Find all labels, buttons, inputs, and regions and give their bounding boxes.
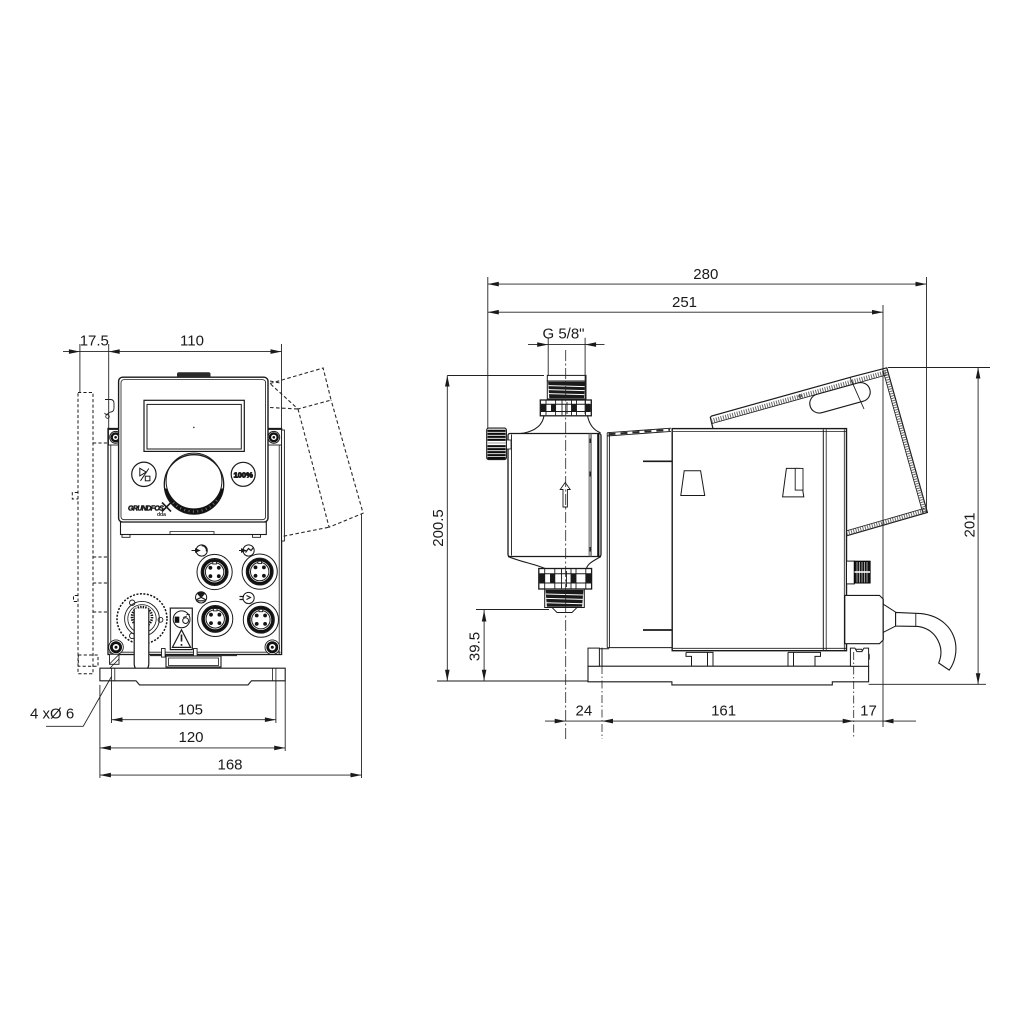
svg-text:dda: dda — [157, 512, 166, 518]
svg-text:110: 110 — [180, 333, 204, 350]
svg-text:105: 105 — [178, 702, 203, 719]
svg-text:17: 17 — [860, 702, 877, 719]
svg-text:200.5: 200.5 — [430, 509, 447, 547]
svg-text:100%: 100% — [234, 470, 254, 479]
svg-text:120: 120 — [178, 729, 203, 746]
svg-text:251: 251 — [672, 294, 697, 311]
svg-text:24: 24 — [576, 702, 593, 719]
svg-text:161: 161 — [711, 702, 736, 719]
svg-text:280: 280 — [693, 266, 718, 283]
svg-text:39.5: 39.5 — [467, 632, 484, 661]
svg-text:201: 201 — [962, 512, 979, 537]
svg-text:17.5: 17.5 — [80, 333, 109, 350]
svg-text:4 xØ 6: 4 xØ 6 — [30, 706, 74, 723]
svg-text:168: 168 — [217, 757, 242, 774]
svg-text:G 5/8": G 5/8" — [542, 326, 584, 343]
